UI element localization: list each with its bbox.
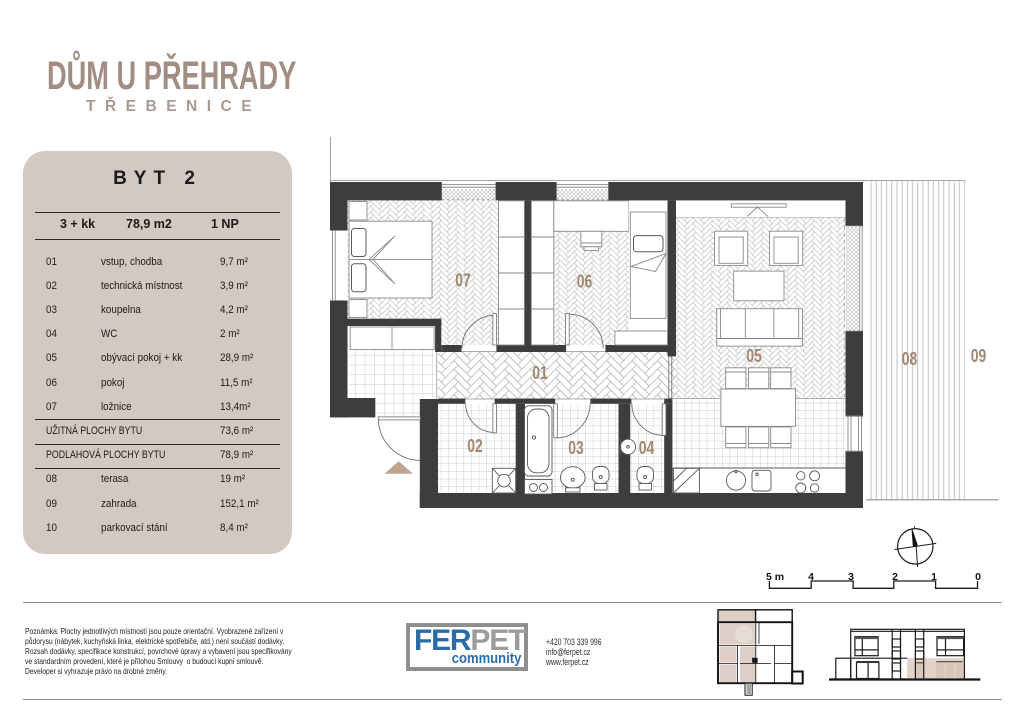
- svg-text:3: 3: [848, 571, 854, 583]
- svg-text:05: 05: [746, 345, 762, 366]
- svg-text:08: 08: [902, 348, 918, 369]
- svg-text:5 m: 5 m: [766, 571, 784, 583]
- svg-text:1: 1: [931, 571, 937, 583]
- svg-text:4: 4: [808, 571, 814, 583]
- svg-text:0: 0: [975, 571, 981, 583]
- svg-text:07: 07: [455, 270, 471, 291]
- svg-text:03: 03: [568, 437, 584, 458]
- svg-text:06: 06: [577, 271, 593, 292]
- svg-text:01: 01: [532, 362, 548, 383]
- svg-text:04: 04: [639, 437, 655, 458]
- svg-text:02: 02: [467, 435, 483, 456]
- svg-text:09: 09: [971, 345, 987, 366]
- svg-text:2: 2: [892, 571, 898, 583]
